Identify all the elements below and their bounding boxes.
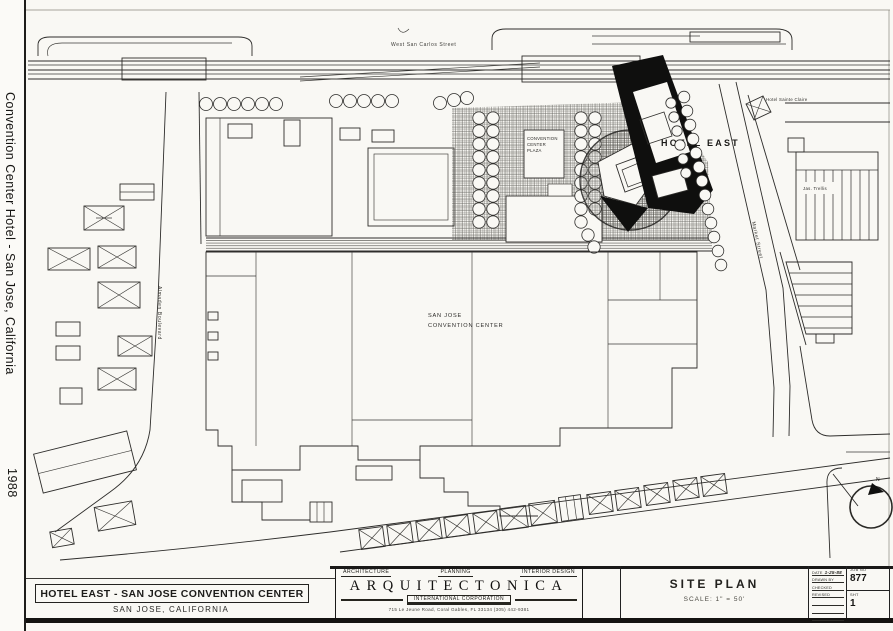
street-label-almaden: Almaden Boulevard	[156, 286, 162, 340]
project-title-block: HOTEL EAST - SAN JOSE CONVENTION CENTER …	[26, 579, 335, 618]
sheet-scale: SCALE: 1" = 50'	[621, 596, 808, 603]
project-location: SAN JOSE, CALIFORNIA	[35, 605, 307, 614]
discipline-interior-design: INTERIOR DESIGN	[520, 569, 577, 577]
rule-right	[515, 599, 577, 601]
cc-label-line2: CONVENTION CENTER	[428, 323, 503, 329]
sheet-bottom-rule	[26, 618, 893, 623]
diagonal-houses	[359, 473, 727, 549]
rule-left	[341, 599, 403, 601]
blank-row	[812, 598, 844, 606]
site-plan-drawing: West San Carlos Street CONVENTION CENTER…	[0, 0, 893, 631]
sainte-claire-block: Hotel Sainte Claire Jas. Trellis	[746, 95, 890, 558]
hotel-east-label: HOTEL EAST	[661, 138, 740, 148]
plaza-label-line1: CONVENTION	[527, 136, 558, 141]
top-street: West San Carlos Street	[28, 28, 890, 82]
trellis-label: Jas. Trellis	[803, 186, 827, 191]
sheet-number-label: SHT	[850, 592, 886, 597]
discipline-architecture: ARCHITECTURE	[341, 569, 391, 577]
parking-stripes	[789, 273, 852, 328]
firm-subtitle: INTERNATIONAL CORPORATION	[407, 595, 511, 605]
plaza-label-line2: CENTER	[527, 142, 546, 147]
architect-block: ARCHITECTURE PLANNING INTERIOR DESIGN AR…	[335, 566, 583, 618]
sheet-title-block: SITE PLAN SCALE: 1" = 50'	[620, 566, 808, 618]
north-label: N	[876, 477, 880, 483]
project-title: HOTEL EAST - SAN JOSE CONVENTION CENTER	[35, 584, 309, 603]
south-street	[60, 458, 890, 560]
revision-block: DATE 1-25-88 DRAWN BY CHECKED REVISED	[808, 566, 846, 618]
convention-center-building: SAN JOSE CONVENTION CENTER	[206, 252, 697, 522]
sheet-number-value: 1	[850, 598, 886, 609]
archive-title: Convention Center Hotel - San Jose, Cali…	[3, 92, 17, 375]
sheet-frame	[26, 10, 890, 566]
discipline-planning: PLANNING	[438, 569, 472, 577]
firm-name: ARQUITECTONICA	[341, 578, 577, 595]
scanned-site-plan-sheet: West San Carlos Street CONVENTION CENTER…	[0, 0, 893, 631]
checked-label: CHECKED	[812, 583, 844, 591]
west-plaza-block	[206, 118, 454, 236]
west-residential-block	[34, 184, 154, 548]
archive-margin-strip: Convention Center Hotel - San Jose, Cali…	[0, 0, 26, 631]
date-label: DATE	[812, 571, 823, 575]
sheet-title: SITE PLAN	[621, 577, 808, 591]
cc-label-line1: SAN JOSE	[428, 313, 462, 319]
archive-year: 1988	[5, 468, 19, 498]
drawn-label: DRAWN BY	[812, 576, 844, 584]
house-x	[50, 528, 74, 548]
trellis-stripes	[806, 170, 869, 240]
blank-row	[812, 606, 844, 614]
job-number-block: JOB NO 877 SHT 1	[846, 566, 890, 618]
house-x	[94, 501, 136, 531]
date-value: 1-25-88	[825, 570, 842, 575]
plaza-label-line3: PLAZA	[527, 148, 542, 153]
street-trees	[200, 92, 474, 111]
street-label-san-carlos: West San Carlos Street	[391, 42, 456, 48]
firm-address: 715 Le Jeune Road, Coral Gables, FL 3313…	[341, 607, 577, 612]
revised-label: REVISED	[812, 591, 844, 599]
job-label: JOB NO	[850, 567, 886, 572]
hotel-sainte-claire-label: Hotel Sainte Claire	[766, 97, 808, 102]
job-value: 877	[850, 573, 886, 584]
street-label-market: Market Street	[750, 221, 764, 259]
blank-row	[812, 614, 844, 622]
almaden-street: Almaden Boulevard	[55, 92, 201, 532]
margin-rule	[24, 0, 26, 631]
